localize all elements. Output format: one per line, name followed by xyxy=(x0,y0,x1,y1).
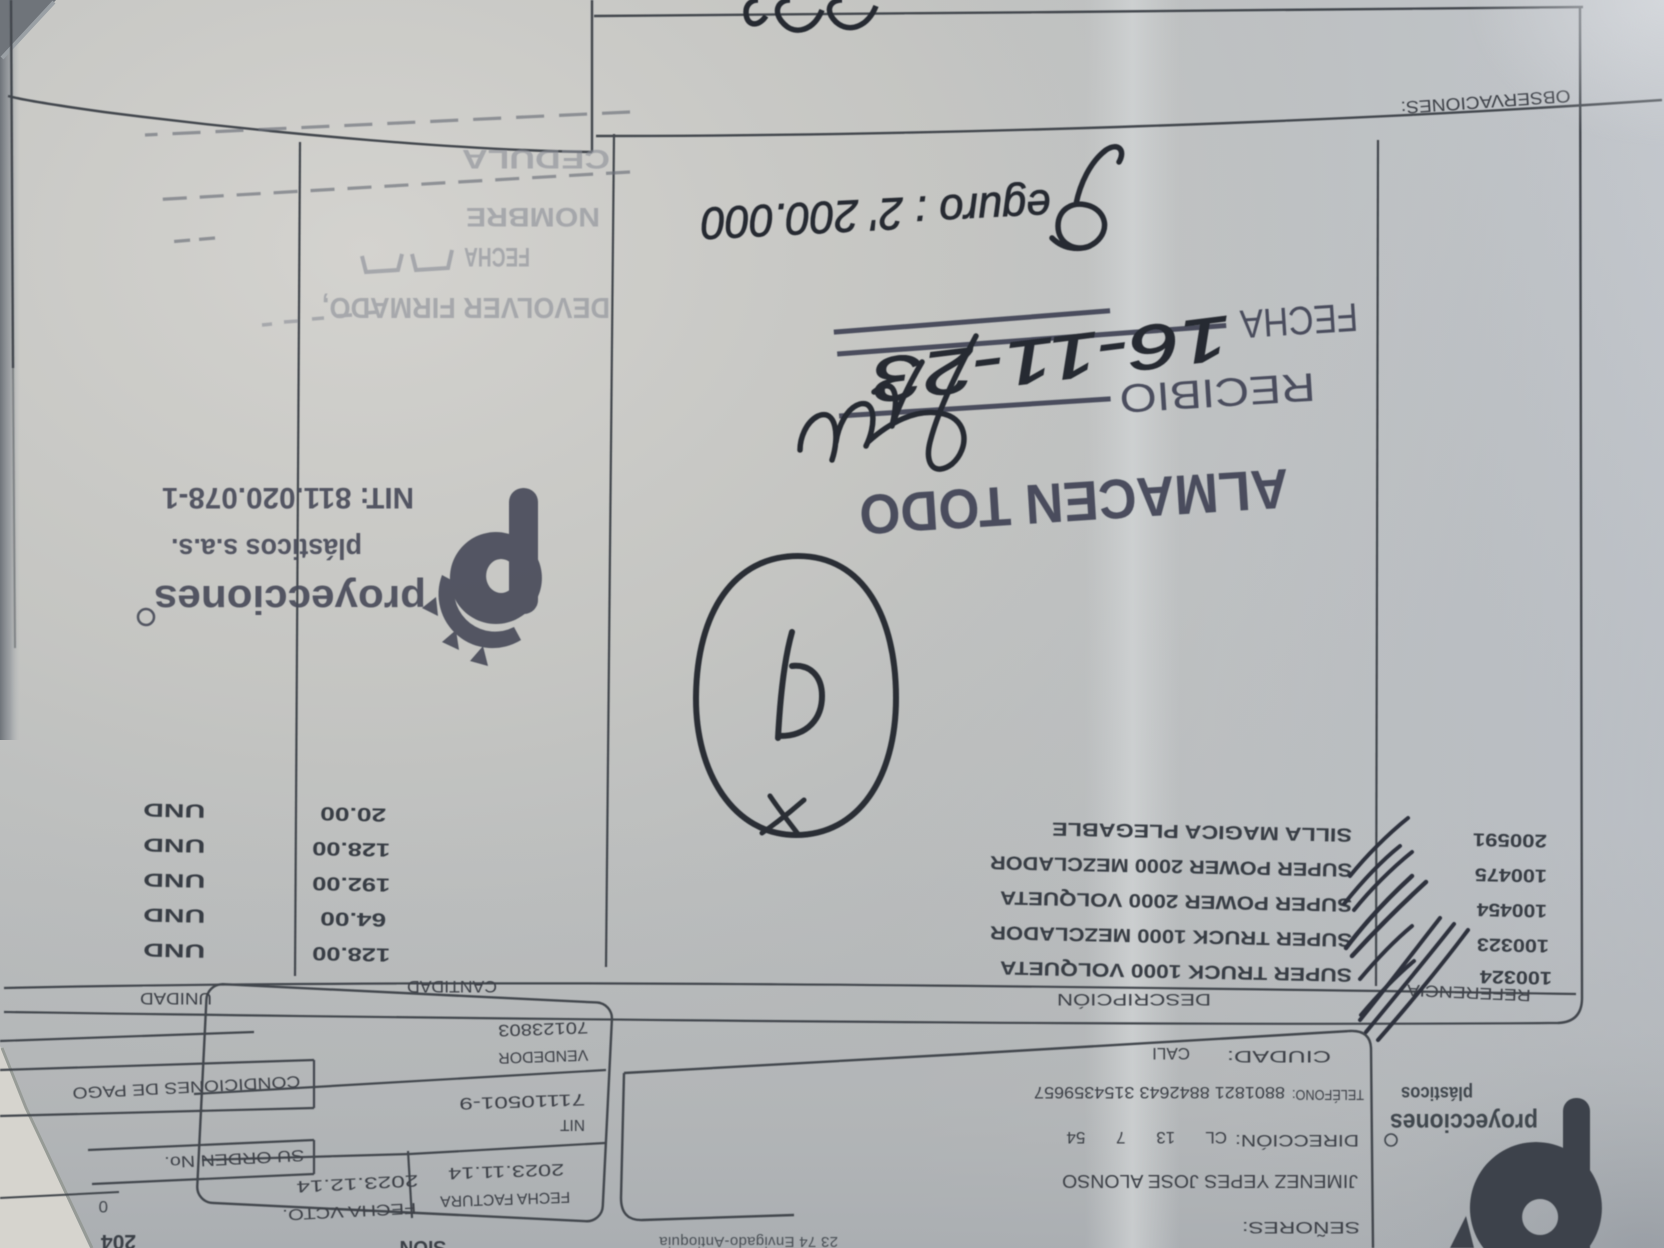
svg-text:192.00: 192.00 xyxy=(312,872,390,895)
svg-text:UND: UND xyxy=(143,938,205,960)
svg-text:proyecciones: proyecciones xyxy=(154,577,426,621)
svg-text:plásticos s.a.s.: plásticos s.a.s. xyxy=(171,532,362,564)
svg-text:CL 13 7 54: CL 13 7 54 xyxy=(1066,1128,1227,1147)
svg-text:UNIDAD: UNIDAD xyxy=(140,989,212,1007)
svg-text:100324: 100324 xyxy=(1479,966,1552,989)
svg-text:JIMENEZ YEPES JOSE ALONSO: JIMENEZ YEPES JOSE ALONSO xyxy=(1062,1171,1358,1192)
svg-text:128.00: 128.00 xyxy=(312,942,390,965)
svg-text:20.00: 20.00 xyxy=(320,802,386,824)
svg-text:UND: UND xyxy=(143,868,205,890)
svg-text:70123803: 70123803 xyxy=(498,1018,589,1039)
svg-text:204: 204 xyxy=(101,1230,136,1248)
svg-text:200591: 200591 xyxy=(1473,829,1547,852)
svg-text:UND: UND xyxy=(143,798,205,820)
svg-text:100454: 100454 xyxy=(1476,899,1547,921)
svg-text:64.00: 64.00 xyxy=(320,907,386,929)
svg-text:CALI: CALI xyxy=(1152,1044,1190,1063)
svg-text:NIT: NIT xyxy=(560,1116,586,1133)
svg-text:100475: 100475 xyxy=(1475,864,1547,887)
svg-text:TELÉFONO:: TELÉFONO: xyxy=(1292,1086,1364,1103)
svg-text:UND: UND xyxy=(143,903,205,925)
svg-text:VENDEDOR: VENDEDOR xyxy=(498,1046,589,1066)
svg-text:proyecciones: proyecciones xyxy=(1390,1108,1538,1138)
svg-text:SIÓN: SIÓN xyxy=(400,1236,446,1248)
svg-text:NIT: 811.020.078-1: NIT: 811.020.078-1 xyxy=(162,481,414,514)
svg-text:UND: UND xyxy=(143,833,205,855)
svg-text:DESCRIPCIÓN: DESCRIPCIÓN xyxy=(1057,990,1211,1009)
svg-text:128.00: 128.00 xyxy=(312,837,390,860)
svg-text:0: 0 xyxy=(99,1197,108,1216)
svg-text:plásticos: plásticos xyxy=(1401,1082,1473,1103)
svg-text:FECHA: FECHA xyxy=(464,242,530,272)
svg-text:23 74 Envigado-Antioquia: 23 74 Envigado-Antioquia xyxy=(659,1233,838,1248)
svg-text:8801821 8842643 3154359657: 8801821 8842643 3154359657 xyxy=(1034,1083,1285,1101)
svg-text:NOMBRE: NOMBRE xyxy=(466,202,600,232)
svg-text:DIRECCIÓN:: DIRECCIÓN: xyxy=(1235,1131,1359,1150)
svg-text:DEVOLVER FIRMADO,: DEVOLVER FIRMADO, xyxy=(322,291,610,323)
svg-text:CANTIDAD: CANTIDAD xyxy=(407,977,497,995)
svg-text:SEÑORES:: SEÑORES: xyxy=(1242,1218,1360,1237)
svg-text:100323: 100323 xyxy=(1477,934,1549,957)
svg-text:CIUDAD:: CIUDAD: xyxy=(1227,1047,1331,1066)
svg-text:CEDULA: CEDULA xyxy=(462,144,610,174)
